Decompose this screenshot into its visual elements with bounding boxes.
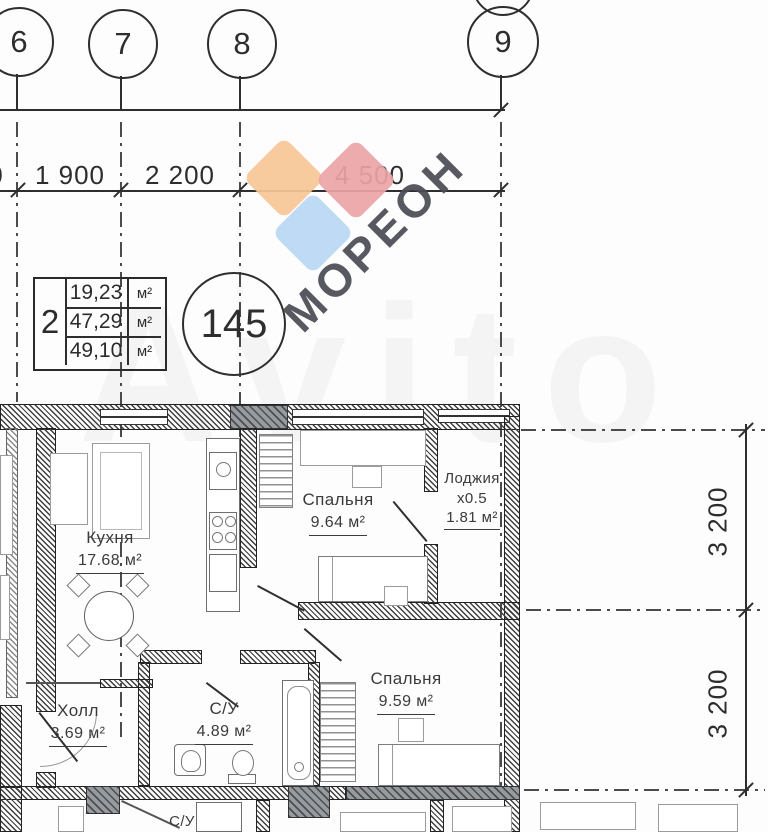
burner [225,516,236,527]
bed-line [332,557,333,601]
room-area: 9.59 м² [377,692,436,715]
sofa-cushion [100,452,142,530]
wall-bedrooms-horizontal [298,602,520,620]
room-label-kitchen: Кухня 17.68 м² [58,527,162,574]
wall-neighbor-stub [256,800,270,832]
center-line [521,429,765,431]
grid-top-line [0,109,505,111]
dining-table [84,591,134,641]
burner [212,516,223,527]
unit-info-table: 2 19,23 м² 47,29 м² 49,10 м² [33,277,167,371]
window-loggia [438,409,510,423]
toilet-bowl [232,750,254,776]
burner [212,532,223,543]
wall-neighbor-block [86,786,120,814]
neighbor-furniture [58,806,84,832]
axis-label-9: 9 [494,24,511,60]
room-area: 3.69 м² [49,724,108,747]
room-name: Лоджия [430,469,514,489]
room-count: 2 [35,279,65,365]
burner [225,532,236,543]
axis-label-6: 6 [10,24,27,60]
axis-label-7: 7 [114,26,131,62]
axis-stub [16,74,18,110]
axis-label-8: 8 [233,26,250,62]
wall-neighbor-stub [430,800,444,832]
floor-plan-canvas: Avito 6 7 8 9 0 1 900 2 200 4 500 3 200 … [0,0,768,832]
chair [66,633,90,657]
bed-line [392,745,393,785]
wall-neighbor-stub [0,786,22,832]
desk [300,430,426,466]
bed-bedroom1 [318,556,428,602]
axis-stub [120,76,122,110]
axis-circle-9: 9 [467,6,539,78]
chair [125,573,149,597]
room-label-hall: Холл 3.69 м² [36,700,120,747]
room-name: С/У [182,698,266,720]
area-unit: м² [128,337,161,365]
nightstand [398,718,424,742]
neighbor-furniture [658,804,738,832]
neighbor-furniture [0,575,10,640]
hall-zone-line [26,682,100,684]
wall-neighbor-left-low [0,705,22,788]
fridge [209,554,237,592]
dimension-label-2200: 2 200 [130,160,230,191]
sink-bowl [216,462,231,477]
neighbor-furniture [540,802,636,830]
center-line [524,789,765,791]
room-area: 4.89 м² [195,722,254,745]
neighbor-furniture [340,812,426,832]
wardrobe-bedroom2 [320,682,356,782]
bathtub-drain [294,762,304,772]
dimension-label-1900: 1 900 [20,160,120,191]
dimension-label-cut: 0 [0,160,6,191]
door-leaf-bedroom1 [257,585,305,611]
room-label-bathroom: С/У 4.89 м² [182,698,266,745]
area-unit: м² [128,279,161,307]
chair [66,573,90,597]
area-value: 19,23 [66,279,126,307]
room-label-bedroom2: Спальня 9.59 м² [354,668,458,715]
wall-bottom-gray [346,786,520,800]
axis-stub [239,76,241,110]
wall-neighbor-block [288,786,330,818]
room-name: Холл [36,700,120,722]
wall-bath-top-right [240,650,316,664]
shelf [50,453,88,525]
window-kitchen [100,409,168,425]
wall-pier [230,405,288,429]
wall-kitchen-bedroom1 [240,428,257,568]
axis-circle-7: 7 [88,9,158,79]
axis-line-6 [16,122,18,402]
room-label-loggia: Лоджия х0.5 1.81 м² [430,469,514,530]
room-name: Кухня [58,527,162,549]
room-name: Спальня [286,489,390,511]
dimension-label-3200-bottom: 3 200 [703,654,734,754]
window-bedroom1 [292,409,424,425]
axis-stub [500,75,502,110]
room-name: Спальня [354,668,458,690]
area-value: 49,10 [66,337,126,365]
door-leaf-loggia [393,501,428,542]
center-line [526,609,765,611]
axis-circle-8: 8 [207,9,277,79]
room-coefficient: х0.5 [430,489,514,509]
room-area: 9.64 м² [309,513,368,536]
nightstand [384,586,408,606]
dimension-label-3200-top: 3 200 [703,472,734,572]
axis-line-9 [500,122,502,790]
room-area: 1.81 м² [444,508,499,530]
neighbor-bathroom-label: С/У [152,812,212,832]
neighbor-furniture [452,806,512,832]
room-label-bedroom1: Спальня 9.64 м² [286,489,390,536]
axis-circle-6: 6 [0,7,54,77]
room-area: 17.68 м² [76,551,144,574]
desk-chair [352,466,382,488]
area-unit: м² [128,308,161,336]
bed-bedroom2 [378,744,500,786]
sink-bathroom-bowl [181,750,201,772]
area-value: 47,29 [66,308,126,336]
neighbor-furniture [0,455,13,555]
axis-line-7 [120,122,122,740]
wall-hall-top [100,679,153,688]
